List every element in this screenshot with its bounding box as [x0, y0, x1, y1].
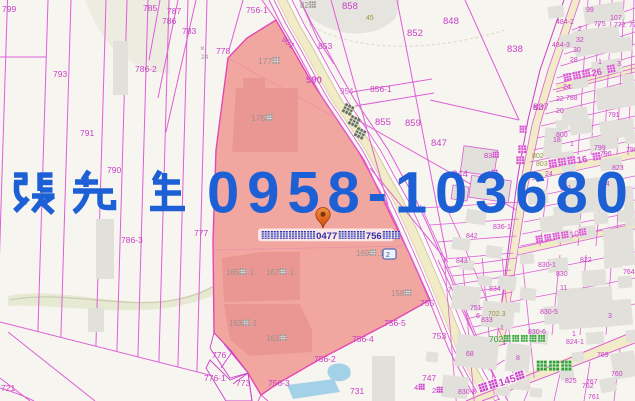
svg-text:484-2: 484-2	[556, 19, 574, 26]
svg-text:837: 837	[533, 105, 545, 112]
svg-text:702.3: 702.3	[488, 311, 506, 318]
svg-text:767: 767	[586, 379, 598, 386]
svg-text:791: 791	[608, 112, 620, 119]
svg-text:830: 830	[556, 271, 568, 278]
svg-text:747: 747	[422, 373, 436, 383]
svg-text:20: 20	[556, 108, 564, 115]
svg-text:.1: .1	[251, 319, 258, 328]
svg-text:24: 24	[201, 54, 209, 61]
svg-text:702: 702	[489, 334, 503, 344]
svg-text:45: 45	[366, 15, 374, 22]
svg-text:825: 825	[565, 378, 577, 385]
svg-text:8: 8	[516, 355, 520, 362]
svg-text:786-2: 786-2	[135, 64, 157, 74]
svg-text:830-1: 830-1	[538, 262, 556, 269]
svg-text:842: 842	[466, 233, 478, 240]
svg-text:756-2: 756-2	[314, 354, 336, 364]
svg-text:776-1: 776-1	[204, 373, 226, 383]
svg-text:790: 790	[107, 165, 121, 175]
svg-text:847: 847	[431, 138, 447, 149]
svg-text:843: 843	[456, 258, 468, 265]
svg-text:175: 175	[251, 113, 265, 123]
svg-text:778: 778	[216, 46, 230, 56]
svg-text:802: 802	[532, 153, 544, 160]
svg-text:834: 834	[489, 286, 501, 293]
svg-text:2: 2	[386, 252, 390, 259]
svg-text:.1: .1	[288, 268, 295, 277]
svg-text:163: 163	[229, 319, 243, 328]
svg-text:83: 83	[484, 151, 492, 160]
svg-text:824-1: 824-1	[566, 339, 584, 346]
svg-text:6: 6	[476, 313, 480, 320]
svg-text:833: 833	[481, 317, 493, 324]
svg-text:4: 4	[414, 383, 418, 392]
svg-text:755: 755	[420, 298, 434, 308]
svg-text:785: 785	[143, 3, 157, 13]
svg-text:761: 761	[588, 394, 600, 401]
svg-text:764: 764	[623, 269, 635, 276]
svg-text:776: 776	[212, 350, 226, 360]
svg-text:68: 68	[466, 351, 474, 358]
svg-text:771: 771	[629, 22, 635, 29]
svg-text:756-3: 756-3	[268, 378, 290, 388]
svg-text:830-8: 830-8	[458, 389, 476, 396]
svg-text:830-5: 830-5	[540, 309, 558, 316]
svg-text:11: 11	[560, 285, 567, 292]
svg-text:760: 760	[611, 371, 623, 378]
svg-text:773: 773	[236, 378, 250, 388]
svg-text:107: 107	[610, 15, 622, 22]
svg-text:751: 751	[470, 305, 482, 312]
svg-text:3: 3	[617, 61, 621, 68]
svg-text:800: 800	[556, 132, 568, 139]
svg-text:838: 838	[507, 44, 523, 55]
svg-text:788: 788	[566, 95, 578, 102]
svg-text:2: 2	[432, 386, 436, 395]
svg-text:24: 24	[563, 84, 571, 91]
svg-text:1: 1	[500, 325, 504, 332]
svg-text:798: 798	[626, 147, 635, 154]
svg-text:10: 10	[569, 228, 580, 239]
svg-text:772: 772	[614, 22, 626, 29]
svg-text:753: 753	[432, 331, 446, 341]
svg-text:0477: 0477	[316, 231, 337, 242]
svg-text:756-5: 756-5	[384, 318, 406, 328]
svg-text:82: 82	[300, 1, 309, 10]
svg-text:28: 28	[570, 57, 578, 64]
svg-text:756-1: 756-1	[246, 5, 268, 15]
svg-text:484-3: 484-3	[552, 42, 570, 49]
svg-text:2: 2	[578, 26, 582, 33]
svg-text:775: 775	[594, 21, 606, 28]
svg-text:1: 1	[598, 59, 602, 66]
svg-text:26: 26	[591, 67, 603, 80]
svg-text:167: 167	[266, 268, 280, 277]
svg-text:852: 852	[407, 28, 423, 39]
svg-text:859: 859	[405, 118, 421, 129]
svg-text:1: 1	[572, 331, 576, 338]
svg-text:783: 783	[182, 26, 196, 36]
svg-text:731: 731	[350, 386, 364, 396]
svg-text:158: 158	[391, 289, 405, 298]
svg-text:756-4: 756-4	[352, 334, 374, 344]
svg-text:32: 32	[576, 37, 584, 44]
svg-text:786: 786	[162, 16, 176, 26]
svg-text:791: 791	[80, 128, 94, 138]
svg-text:161: 161	[266, 334, 280, 343]
svg-text:777: 777	[194, 228, 208, 238]
svg-text:99: 99	[586, 7, 594, 14]
svg-text:×: ×	[200, 44, 205, 53]
svg-text:787: 787	[167, 6, 181, 16]
svg-text:954: 954	[340, 87, 354, 96]
svg-text:756: 756	[366, 231, 382, 242]
svg-text:856-1: 856-1	[370, 84, 392, 94]
svg-text:165: 165	[226, 268, 240, 277]
svg-text:177: 177	[258, 56, 272, 66]
svg-text:3: 3	[608, 313, 612, 320]
svg-text:786-3: 786-3	[121, 235, 143, 245]
svg-text:858: 858	[342, 1, 358, 12]
svg-text:769: 769	[597, 352, 609, 359]
svg-text:30: 30	[573, 47, 581, 54]
svg-text:822: 822	[580, 257, 592, 264]
svg-text:7: 7	[448, 287, 452, 294]
svg-text:721: 721	[1, 383, 15, 393]
svg-text:793: 793	[53, 69, 67, 79]
svg-text:0958-103680: 0958-103680	[207, 161, 635, 226]
svg-text:796: 796	[600, 151, 612, 158]
svg-text:830-6: 830-6	[528, 329, 546, 336]
svg-text:.1: .1	[248, 268, 255, 277]
svg-text:169: 169	[356, 249, 370, 258]
svg-text:22: 22	[556, 96, 564, 103]
svg-text:590: 590	[306, 75, 322, 86]
svg-text:799: 799	[2, 4, 16, 14]
svg-text:1: 1	[570, 141, 574, 148]
svg-text:848: 848	[443, 16, 459, 27]
svg-text:853: 853	[318, 41, 332, 51]
svg-text:855: 855	[375, 117, 391, 128]
